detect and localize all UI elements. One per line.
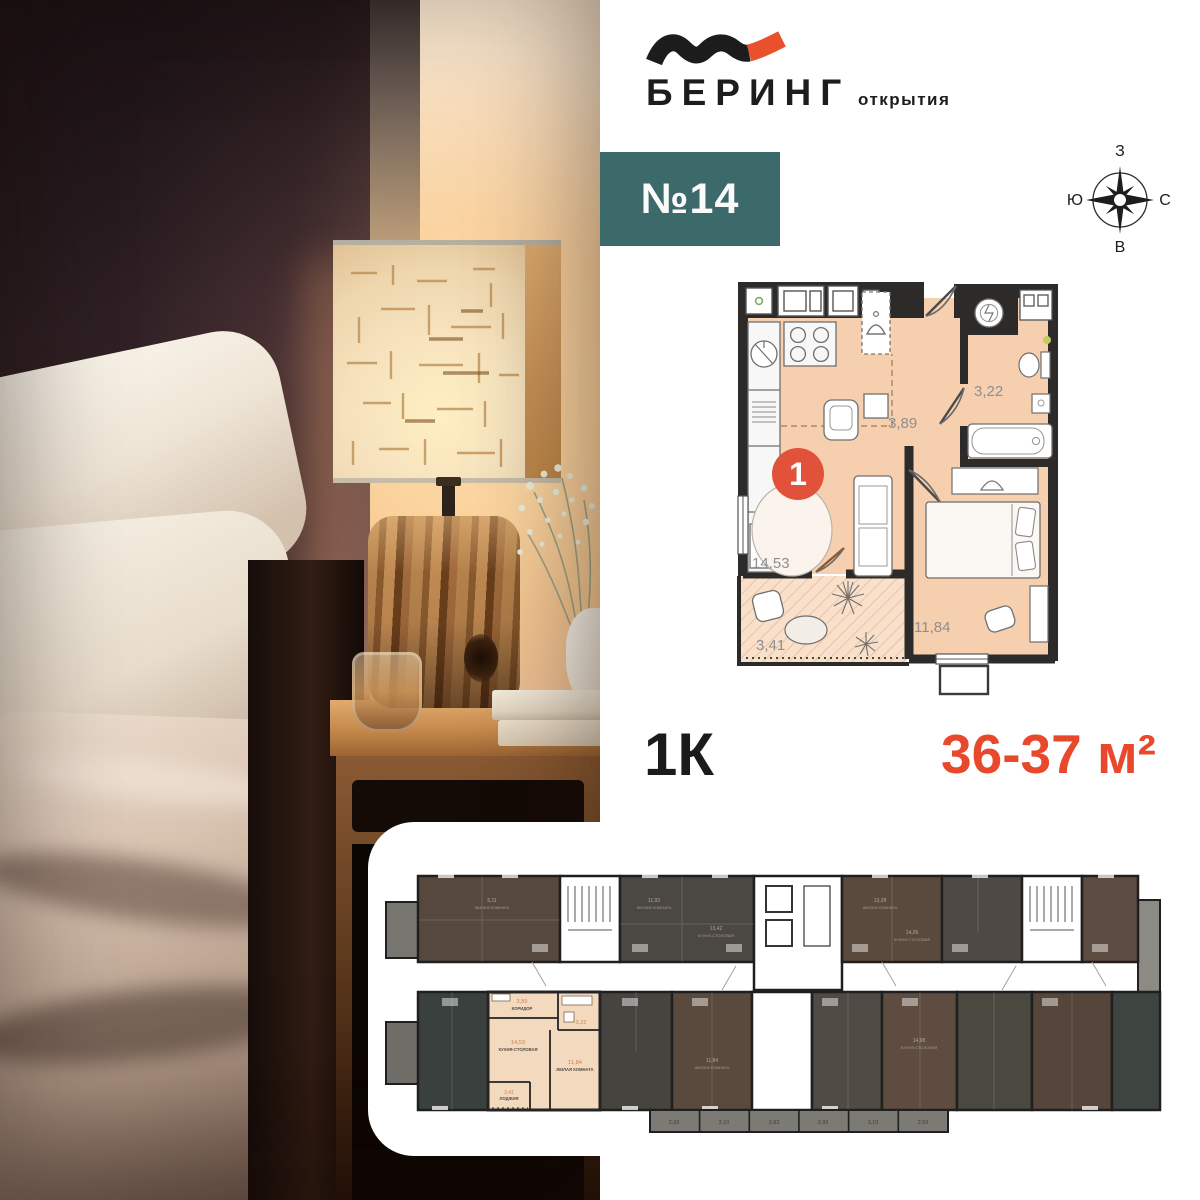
bathtub-icon xyxy=(968,424,1052,458)
unit-room-label: ЖИЛАЯ КОМНАТА xyxy=(863,905,898,910)
stove-icon xyxy=(784,322,836,366)
lobby xyxy=(752,992,812,1110)
unit-room-label: КУХНЯ-СТОЛОВАЯ xyxy=(901,1045,938,1050)
kitchen-sink-icon xyxy=(751,341,777,367)
compass-center xyxy=(1114,194,1126,206)
hl-kitchen-label: КУХНЯ-СТОЛОВАЯ xyxy=(498,1047,537,1052)
unit-room-label: ЖИЛАЯ КОМНАТА xyxy=(637,905,672,910)
unit-room-label: КУХНЯ-СТОЛОВАЯ xyxy=(894,937,931,942)
apartment-card: БЕРИНГ открытия №14 З С В Ю xyxy=(0,0,1200,1200)
compass-label-left: Ю xyxy=(1068,192,1083,209)
balcony-area: 2,93 xyxy=(669,1120,680,1126)
unit-area-label: 14,26 xyxy=(906,930,919,936)
hl-loggia-label: ЛОДЖИЯ xyxy=(500,1096,519,1101)
bath-shelf-boxes xyxy=(1020,290,1052,320)
unit-marker-number: 1 xyxy=(789,456,807,492)
elevator-core xyxy=(754,876,842,990)
bath-sink-icon xyxy=(1032,394,1050,413)
washing-machine-icon xyxy=(975,299,1003,327)
area-range-label: 36-37 м² xyxy=(840,722,1156,786)
bed-icon xyxy=(926,502,1040,578)
toilet-icon xyxy=(1019,352,1050,378)
stairwell xyxy=(560,876,620,962)
building-unit xyxy=(812,992,882,1110)
main-floor-plan: 1 3,89 3,22 14,53 11,84 3,41 xyxy=(726,278,1066,710)
rooms-count-label: 1К xyxy=(644,720,714,789)
balcony-strip: 2,93 3,10 3,93 3,93 3,10 2,93 xyxy=(650,1110,948,1132)
compass-label-top: З xyxy=(1115,143,1125,160)
area-kitchen: 14,53 xyxy=(752,555,790,572)
brand-name: БЕРИНГ xyxy=(646,72,850,114)
area-loggia: 3,41 xyxy=(756,637,785,654)
hl-corridor-label: КОРИДОР xyxy=(512,1006,533,1011)
hl-room-area: 11,84 xyxy=(568,1060,583,1066)
unit-area-label: 13,28 xyxy=(874,898,887,904)
hl-room-label: ЖИЛАЯ КОМНАТА xyxy=(555,1067,593,1072)
building-floor-plan: 3,89 КОРИДОР 3,22 14,53 КУХНЯ-СТОЛОВАЯ 1… xyxy=(382,872,1162,1140)
highlighted-unit: 3,89 КОРИДОР 3,22 14,53 КУХНЯ-СТОЛОВАЯ 1… xyxy=(488,992,600,1110)
stairwell xyxy=(1022,876,1082,962)
balcony-area: 3,93 xyxy=(818,1120,829,1126)
building-unit xyxy=(1112,992,1160,1110)
balcony-area: 3,10 xyxy=(868,1120,879,1126)
balcony-area: 3,10 xyxy=(719,1120,730,1126)
balcony-area: 3,93 xyxy=(769,1120,780,1126)
unit-area-label: 11,93 xyxy=(648,898,660,904)
entry-porch xyxy=(940,666,988,694)
unit-room-label: ЖИЛАЯ КОМНАТА xyxy=(475,905,510,910)
unit-room-label: КУХНЯ-СТОЛОВАЯ xyxy=(698,933,735,938)
armchair-icon xyxy=(824,400,858,440)
area-bathroom: 3,22 xyxy=(974,383,1003,400)
hall-wardrobe xyxy=(862,292,890,354)
loggia-table-icon xyxy=(785,616,827,644)
unit-area-label: 11,84 xyxy=(706,1058,718,1064)
side-table-icon xyxy=(864,394,888,418)
area-corridor: 3,89 xyxy=(888,415,917,432)
loggia-chair-icon xyxy=(751,589,785,623)
compass-label-bottom: В xyxy=(1115,239,1126,256)
unit-marker: 1 xyxy=(772,448,824,500)
hl-corridor-area: 3,89 xyxy=(517,999,528,1005)
sensor-dot xyxy=(1043,336,1051,344)
brand-logo-wave xyxy=(646,20,796,78)
building-plan-card: 3,89 КОРИДОР 3,22 14,53 КУХНЯ-СТОЛОВАЯ 1… xyxy=(368,822,1200,1156)
balcony-area: 2,93 xyxy=(918,1120,929,1126)
sofa-icon xyxy=(854,476,892,576)
unit-room-label: ЖИЛАЯ КОМНАТА xyxy=(695,1065,730,1070)
unit-area-label: 5,11 xyxy=(487,898,497,904)
compass-rose: З С В Ю xyxy=(1068,140,1172,256)
building-unit xyxy=(1082,876,1138,962)
building-annex xyxy=(386,902,418,958)
area-bedroom: 11,84 xyxy=(914,619,950,636)
bedroom-bench-icon xyxy=(1030,586,1048,642)
apartment-number-badge: №14 xyxy=(600,152,780,246)
hl-bathroom-area: 3,22 xyxy=(576,1020,587,1026)
apartment-number: №14 xyxy=(641,175,740,224)
unit-area-label: 13,42 xyxy=(710,926,723,932)
building-unit xyxy=(418,992,488,1110)
compass-label-right: С xyxy=(1159,192,1171,209)
brand-tagline: открытия xyxy=(858,90,950,110)
building-annex xyxy=(386,1022,418,1084)
bedroom-wardrobe-icon xyxy=(952,468,1038,494)
unit-area-label: 14,98 xyxy=(913,1038,926,1044)
hl-kitchen-area: 14,53 xyxy=(511,1040,526,1046)
